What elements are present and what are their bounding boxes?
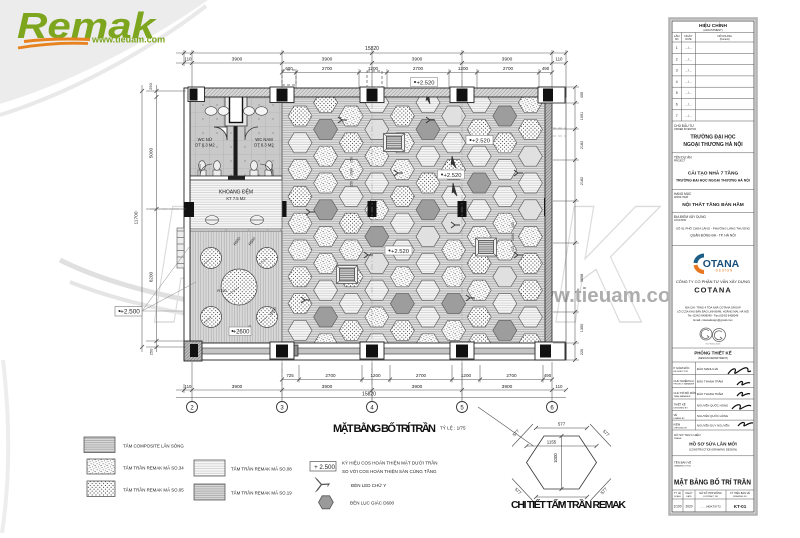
- svg-text:2700: 2700: [325, 373, 336, 378]
- svg-text:+2.500: +2.500: [120, 309, 140, 316]
- svg-text:110: 110: [185, 57, 193, 62]
- svg-text:WC NAM: WC NAM: [255, 137, 273, 142]
- svg-text:1091: 1091: [580, 112, 584, 120]
- svg-text:WORK ITEM: WORK ITEM: [674, 196, 688, 199]
- svg-text:110: 110: [185, 384, 193, 389]
- svg-text:TẤM TRẦN REMAK MÃ SO.08: TẤM TRẦN REMAK MÃ SO.08: [231, 467, 292, 472]
- svg-text:DESIGNED BY: DESIGNED BY: [674, 407, 689, 409]
- svg-text:…/…: …/…: [685, 103, 692, 107]
- svg-text:DRAWING NO: DRAWING NO: [733, 495, 747, 498]
- svg-text:1200: 1200: [368, 66, 379, 71]
- svg-text:1000: 1000: [350, 168, 354, 176]
- svg-text:SO VỚI COS HOÀN THIỆN SÀN CÙNG: SO VỚI COS HOÀN THIỆN SÀN CÙNG TẦNG: [342, 467, 437, 474]
- svg-text:PHÒNG THIẾT KẾ: PHÒNG THIẾT KẾ: [694, 351, 731, 356]
- svg-text:1000: 1000: [511, 233, 515, 241]
- svg-text:LOCATION: LOCATION: [674, 219, 686, 222]
- svg-text:3: 3: [676, 69, 678, 73]
- svg-text:5000: 5000: [149, 147, 154, 158]
- svg-text:WC NỮ: WC NỮ: [198, 137, 213, 142]
- svg-text:2700: 2700: [416, 373, 427, 378]
- svg-text:2182: 2182: [580, 141, 584, 149]
- svg-text:1: 1: [676, 46, 678, 50]
- svg-text:2182: 2182: [580, 177, 584, 185]
- svg-text:DRAWING TITLE: DRAWING TITLE: [674, 465, 692, 468]
- svg-text:TỶ LỆ : 1/75: TỶ LỆ : 1/75: [440, 424, 466, 431]
- svg-text:1/100: 1/100: [674, 505, 682, 509]
- svg-text:ISO 9001:2015: ISO 9001:2015: [706, 344, 721, 346]
- svg-text:15820: 15820: [365, 46, 379, 52]
- svg-text:1350: 1350: [580, 324, 584, 332]
- svg-text:KHOANG ĐỆM: KHOANG ĐỆM: [219, 188, 253, 196]
- svg-text:ĐÀO THANH TRẦM: ĐÀO THANH TRẦM: [697, 392, 724, 396]
- svg-text:+2.520: +2.520: [444, 173, 462, 179]
- svg-text:www.tieuam.com: www.tieuam.com: [91, 35, 165, 45]
- svg-text:3900: 3900: [322, 57, 333, 63]
- svg-text:4: 4: [676, 80, 678, 84]
- svg-text:DT 6.3 M2: DT 6.3 M2: [195, 143, 215, 148]
- svg-text:TẤM TRẦN REMAK MÃ SO.05: TẤM TRẦN REMAK MÃ SO.05: [123, 488, 184, 493]
- svg-text:3900: 3900: [502, 57, 513, 63]
- svg-text:2700: 2700: [503, 66, 514, 71]
- svg-text:3900: 3900: [412, 384, 423, 390]
- svg-text:HĐ.DIRECTOR: HĐ.DIRECTOR: [674, 371, 689, 373]
- svg-text:DATE: DATE: [686, 495, 692, 498]
- svg-text:15820: 15820: [362, 392, 376, 398]
- svg-text:110: 110: [556, 57, 564, 62]
- svg-text:+ 2.500: + 2.500: [314, 464, 335, 471]
- svg-text:7: 7: [676, 114, 678, 118]
- svg-text:NGUYỄN QUỐC HÙNG: NGUYỄN QUỐC HÙNG: [697, 413, 729, 418]
- svg-text:415: 415: [511, 246, 515, 252]
- svg-text:6200: 6200: [149, 271, 154, 282]
- svg-text:TRƯỜNG ĐẠI HỌC NGOẠI THƯƠNG HÀ: TRƯỜNG ĐẠI HỌC NGOẠI THƯƠNG HÀ NỘI: [676, 177, 750, 182]
- svg-text:2700: 2700: [506, 373, 517, 378]
- svg-text:Tel: (024)3 6408049 - Fax:(024: Tel: (024)3 6408049 - Fax:(024)3 6408049: [688, 314, 739, 318]
- svg-text:NGOẠI THƯƠNG HÀ NỘI: NGOẠI THƯƠNG HÀ NỘI: [683, 140, 743, 148]
- svg-text:577: 577: [558, 422, 566, 427]
- svg-text:11700: 11700: [134, 211, 140, 224]
- svg-text:TRƯỜNG ĐẠI HỌC: TRƯỜNG ĐẠI HỌC: [690, 133, 735, 141]
- svg-text:+2.520: +2.520: [472, 138, 490, 144]
- svg-text:HỒ SƠ SỬA LẦN MỚI: HỒ SƠ SỬA LẦN MỚI: [689, 440, 736, 447]
- svg-text:TÊN BẢN VẼ: TÊN BẢN VẼ: [674, 460, 691, 465]
- svg-text:COTANA: COTANA: [694, 286, 732, 295]
- svg-text:TẤM COMPOSITE LẮN SÓNG: TẤM COMPOSITE LẮN SÓNG: [123, 444, 184, 449]
- svg-text:600: 600: [285, 66, 293, 71]
- svg-text:(CONSTRUCTION DRAWING DESIGN): (CONSTRUCTION DRAWING DESIGN): [689, 447, 737, 451]
- svg-text:DATE: DATE: [685, 38, 692, 41]
- svg-text:SCALE: SCALE: [674, 495, 681, 498]
- svg-text:3658: 3658: [580, 274, 584, 282]
- svg-text:NGÀY: NGÀY: [685, 492, 692, 495]
- svg-text:QUẬN ĐỐNG ĐA - TP. HÀ NỘI: QUẬN ĐỐNG ĐA - TP. HÀ NỘI: [690, 233, 736, 238]
- svg-text:(DESIGN DEPARTMENT): (DESIGN DEPARTMENT): [698, 356, 728, 360]
- svg-text:…/…: …/…: [685, 69, 692, 73]
- svg-text:+2.520: +2.520: [391, 249, 409, 255]
- svg-text:1200: 1200: [458, 66, 469, 71]
- svg-text:MÃ SỐ HỢP ĐỒNG: MÃ SỐ HỢP ĐỒNG: [699, 492, 722, 495]
- svg-text:PHASE: PHASE: [674, 437, 682, 440]
- svg-text:R750: R750: [217, 288, 227, 293]
- svg-text:MẶT BẰNG BỐ TRÍ TRẦN: MẶT BẰNG BỐ TRÍ TRẦN: [333, 421, 436, 435]
- svg-text:405: 405: [580, 92, 584, 98]
- svg-text:1155: 1155: [547, 440, 557, 445]
- svg-text:3900: 3900: [502, 384, 513, 390]
- svg-text:KÝ HIỆU BẢN VẼ: KÝ HIỆU BẢN VẼ: [730, 492, 750, 495]
- svg-text:150: 150: [511, 222, 515, 228]
- svg-text:CÔNG TY CỔ PHẦN TƯ VẤN XÂY DỰN: CÔNG TY CỔ PHẦN TƯ VẤN XÂY DỰNG: [676, 279, 750, 284]
- svg-text:490: 490: [544, 373, 552, 378]
- svg-text:DT 6.3 M2: DT 6.3 M2: [254, 143, 274, 148]
- svg-text:+2600: +2600: [233, 330, 251, 336]
- svg-text:KÝ HIỆU COS HOÀN THIỆN MẶT DƯỚ: KÝ HIỆU COS HOÀN THIỆN MẶT DƯỚI TRẦN: [342, 459, 437, 466]
- svg-text:150: 150: [350, 181, 354, 187]
- svg-text:NO: NO: [675, 38, 679, 41]
- svg-text:2700: 2700: [413, 66, 424, 71]
- svg-text:ĐÈN LỤC GIÁC D600: ĐÈN LỤC GIÁC D600: [350, 500, 395, 506]
- svg-text:CONTRACT NO: CONTRACT NO: [703, 495, 719, 498]
- svg-text:1000: 1000: [553, 453, 558, 463]
- svg-text:ĐÀO THANH TRẦM: ĐÀO THANH TRẦM: [697, 380, 724, 384]
- svg-text:3900: 3900: [412, 57, 423, 63]
- svg-text:Email: cotanadesign@gmail.com: Email: cotanadesign@gmail.com: [693, 318, 733, 322]
- svg-text:3900: 3900: [232, 384, 243, 390]
- svg-text:110: 110: [556, 384, 564, 389]
- svg-text:250: 250: [148, 82, 153, 89]
- svg-text:ĐÀO MẠNH HẢI: ĐÀO MẠNH HẢI: [697, 366, 718, 371]
- svg-text:+2.520: +2.520: [417, 80, 435, 86]
- svg-text:TỶ LỆ: TỶ LỆ: [674, 492, 681, 495]
- svg-text:2700: 2700: [322, 66, 333, 71]
- svg-text:HỒ SƠ THỰC HIỆN: HỒ SƠ THỰC HIỆN: [674, 432, 700, 437]
- svg-text:PROJECT: PROJECT: [674, 160, 686, 163]
- svg-text:CẢI TẠO NHÀ 7 TẦNG: CẢI TẠO NHÀ 7 TẦNG: [688, 170, 739, 177]
- svg-text:…/…: …/…: [685, 80, 692, 84]
- svg-text:…/…: …/…: [685, 46, 692, 50]
- svg-text:D E S I G N: D E S I G N: [716, 269, 733, 273]
- svg-text:SỐ 91 PHỐ CHÙA LÁNG - PHƯỜNG L: SỐ 91 PHỐ CHÙA LÁNG - PHƯỜNG LÁNG THƯỢNG: [676, 226, 751, 231]
- svg-text:NGUYỄN QUỐC HÙNG: NGUYỄN QUỐC HÙNG: [697, 402, 729, 407]
- svg-text:TẤM TRẦN REMAK MÃ SO.34: TẤM TRẦN REMAK MÃ SO.34: [123, 466, 184, 471]
- svg-text:TẤM TRẦN REMAK MÃ SO.19: TẤM TRẦN REMAK MÃ SO.19: [231, 491, 292, 496]
- svg-text:TEAM MANAGER: TEAM MANAGER: [674, 395, 691, 398]
- svg-text:490: 490: [542, 66, 550, 71]
- svg-text:OWNER INVESTOR: OWNER INVESTOR: [674, 128, 696, 131]
- svg-text:(Content): (Content): [720, 38, 730, 41]
- svg-text:…/…: …/…: [685, 57, 692, 61]
- svg-text:DRAWN BY: DRAWN BY: [674, 417, 686, 420]
- svg-text:250: 250: [149, 348, 154, 355]
- svg-text:PROJECT MANAGER: PROJECT MANAGER: [674, 383, 695, 386]
- svg-text:1200: 1200: [461, 373, 472, 378]
- svg-text:3900: 3900: [322, 384, 333, 390]
- svg-text:……HĐKT/KT2: ……HĐKT/KT2: [700, 505, 721, 509]
- svg-text:CHECKED BY: CHECKED BY: [674, 428, 688, 430]
- svg-text:2: 2: [676, 57, 678, 61]
- svg-text:3900: 3900: [232, 57, 243, 63]
- svg-text:CHI TIẾT TẤM TRẦN REMAK: CHI TIẾT TẤM TRẦN REMAK: [511, 498, 626, 511]
- svg-text:725: 725: [286, 373, 294, 378]
- svg-text:2020: 2020: [685, 505, 692, 509]
- svg-text:KT-01: KT-01: [734, 504, 747, 509]
- svg-text:NGUYỄN DUY NGUYỄN: NGUYỄN DUY NGUYỄN: [697, 423, 729, 428]
- svg-text:ĐÈN LED CHỮ Y: ĐÈN LED CHỮ Y: [351, 482, 386, 488]
- svg-text:5: 5: [676, 91, 678, 95]
- svg-text:…/…: …/…: [685, 114, 692, 118]
- svg-text:220: 220: [580, 349, 584, 355]
- svg-text:150: 150: [350, 157, 354, 163]
- svg-text:6: 6: [676, 103, 678, 107]
- svg-text:…/…: …/…: [685, 91, 692, 95]
- svg-text:1200: 1200: [370, 373, 381, 378]
- svg-text:KT 7.5 M2: KT 7.5 M2: [226, 196, 246, 201]
- svg-text:(ADJUSTMENT): (ADJUSTMENT): [703, 28, 722, 32]
